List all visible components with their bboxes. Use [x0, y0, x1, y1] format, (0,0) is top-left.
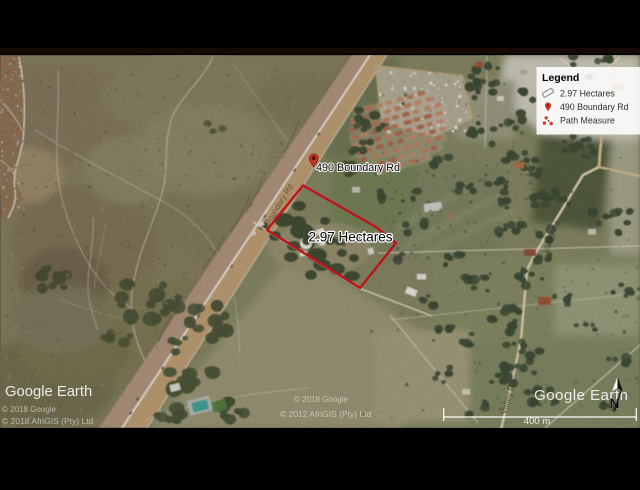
svg-text:Path Measure: Path Measure [560, 115, 615, 125]
svg-text:© 2018 AfriGIS (Pty) Ltd: © 2018 AfriGIS (Pty) Ltd [2, 416, 94, 426]
svg-text:© 2018 Google: © 2018 Google [294, 395, 348, 404]
svg-text:2.97 Hectares: 2.97 Hectares [560, 89, 615, 99]
svg-text:400 m: 400 m [524, 416, 550, 427]
svg-text:© 2012 AfriGIS (Pty) Ltd: © 2012 AfriGIS (Pty) Ltd [280, 409, 372, 419]
svg-text:490 Boundary Rd: 490 Boundary Rd [316, 162, 400, 174]
svg-text:Google Earth: Google Earth [5, 384, 92, 400]
svg-text:Legend: Legend [542, 72, 579, 84]
svg-text:490 Boundary Rd: 490 Boundary Rd [560, 102, 629, 112]
svg-text:2.97 Hectares: 2.97 Hectares [309, 230, 393, 245]
svg-text:© 2018 Google: © 2018 Google [2, 405, 56, 414]
